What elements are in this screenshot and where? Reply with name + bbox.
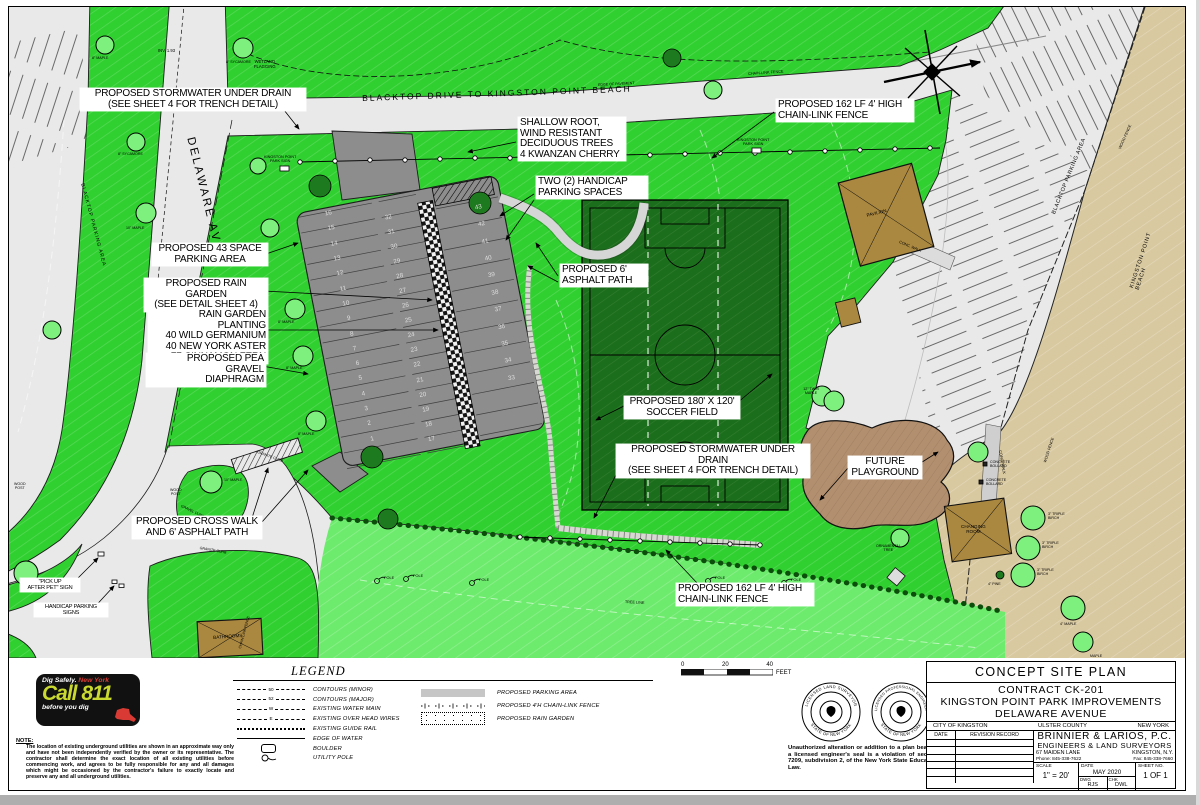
parking-space-number: 35: [498, 340, 511, 348]
parking-area-symbol: [421, 689, 485, 697]
callout-rain-garden: PROPOSED RAIN GARDEN (SEE DETAIL SHEET 4…: [144, 278, 268, 312]
pole-label-1: POLE: [384, 576, 394, 580]
wetland-flagging-label: WETLAND FLAGGING: [254, 60, 276, 69]
svg-text:STATE OF NEW YORK: STATE OF NEW YORK: [810, 722, 853, 737]
callout-parking-area: PROPOSED 43 SPACE PARKING AREA: [152, 243, 268, 266]
parking-space-number: 37: [492, 306, 505, 314]
parking-space-number: 36: [495, 323, 508, 331]
parking-space-number: 9: [342, 315, 355, 323]
parking-space-number: 24: [405, 332, 418, 340]
guide-rail-symbol: [237, 728, 305, 730]
bollard-label-1: CONCRETE BOLLARD: [990, 460, 1010, 468]
callout-asphalt-path: PROPOSED 6' ASPHALT PATH: [560, 264, 648, 287]
scale-cell: SCALE 1" = 20': [1034, 763, 1079, 791]
revision-table: DATE REVISION RECORD: [927, 731, 1034, 783]
parking-space-number: 2: [363, 420, 376, 428]
parking-space-number: 21: [414, 376, 427, 384]
parking-space-number: 15: [325, 225, 338, 233]
pole-label-4: POLE: [715, 576, 725, 580]
plan-title: CONCEPT SITE PLAN: [927, 662, 1175, 683]
parking-space-number: 30: [388, 243, 401, 251]
parking-space-number: 4: [357, 390, 370, 398]
parking-space-number: 26: [399, 302, 412, 310]
tree-label-9: MAPLE: [1090, 654, 1102, 658]
tree-label-6: 8" MAPLE: [298, 432, 314, 436]
ornamental-tree-label: ORNAMENTAL TREE: [876, 544, 901, 552]
note-body: The location of existing underground uti…: [26, 744, 234, 781]
parking-space-number: 10: [340, 300, 353, 308]
callout-pea-gravel: PROPOSED PEA GRAVEL DIAPHRAGM: [146, 353, 266, 387]
tree-label-4: 8" MAPLE: [278, 320, 294, 324]
dwg-cell: DWGRJS: [1079, 777, 1108, 791]
callout-fence-bottom: PROPOSED 162 LF 4' HIGH CHAIN-LINK FENCE: [676, 583, 814, 606]
pole-label-2: POLE: [413, 574, 423, 578]
ny-state-icon: [114, 706, 138, 723]
parking-space-number: 16: [322, 210, 335, 218]
legend-row-boulder: BOULDER: [237, 744, 400, 754]
callout-stormwater-drain-1: PROPOSED STORMWATER UNDER DRAIN (SEE SHE…: [80, 88, 306, 111]
scale-bar: 0 20 40 FEET: [681, 662, 811, 676]
twin-maple-label: 12" TWIN MAPLE: [798, 387, 824, 395]
legend: LEGEND 50 CONTOURS (MINOR) 52 CONTOURS (…: [233, 664, 653, 788]
utility-pole-symbol: [237, 753, 305, 763]
parking-space-number: 14: [328, 240, 341, 248]
contract-number: CONTRACT CK-201: [927, 684, 1175, 696]
revision-row: [927, 747, 1033, 754]
revision-row: [927, 740, 1033, 747]
callout-stormwater-drain-2: PROPOSED STORMWATER UNDER DRAIN (SEE SHE…: [616, 444, 810, 478]
legend-right-column: PROPOSED PARKING AREA PROPOSED 4'H CHAIN…: [421, 686, 600, 725]
revision-row: [927, 755, 1033, 762]
contour-minor-symbol: 50: [237, 688, 305, 693]
sheet-cell: SHEET NO. 1 OF 1: [1136, 763, 1175, 791]
parking-space-number: 19: [419, 406, 432, 414]
page-bottom-bar: [0, 795, 1200, 805]
callout-fence-top: PROPOSED 162 LF 4' HIGH CHAIN-LINK FENCE: [776, 99, 914, 122]
svg-text:STATE OF NEW YORK: STATE OF NEW YORK: [880, 722, 923, 737]
parking-space-number: 39: [485, 272, 498, 280]
overhead-wires-symbol: E: [237, 717, 305, 722]
parking-space-number: 31: [385, 228, 398, 236]
changing-room-label: CHANGING ROOM: [961, 524, 986, 534]
site-plan-sheet: BLACKTOP DRIVE TO KINGSTON POINT BEACH D…: [0, 0, 1200, 805]
alteration-note: Unauthorized alteration or addition to a…: [788, 745, 938, 771]
parking-space-number: 38: [489, 289, 502, 297]
contour-major-symbol: 52: [237, 697, 305, 702]
triple-birch-label-3: 3" TRIPLE BIRCH: [1037, 568, 1054, 576]
tree-label-1: 8" MAPLE: [92, 56, 108, 60]
tree-label-7: 10" MAPLE: [224, 478, 242, 482]
scale-bar-graphic: [681, 669, 773, 676]
parking-space-number: 40: [482, 255, 495, 263]
legend-row-edge-of-water: EDGE OF WATER: [237, 734, 400, 744]
chk-cell: CHKDWL: [1108, 777, 1136, 791]
callout-handicap-signs: HANDICAP PARKING SIGNS: [34, 603, 108, 617]
seal-crest-1: [827, 706, 836, 717]
revision-row: [927, 762, 1033, 769]
edge-of-water-symbol: [237, 738, 305, 739]
parking-space-number: 12: [334, 270, 347, 278]
parking-space-number: 11: [337, 285, 350, 293]
revision-row: [927, 777, 1033, 783]
parking-space-number: 18: [422, 420, 435, 428]
tree-label-8: 8" SYCAMORE: [118, 152, 143, 156]
tree-label-5: 8" MAPLE: [286, 366, 302, 370]
parking-space-number: 27: [396, 288, 409, 296]
sheet-bottom-strip: Dig Safely. New York Call 811 before you…: [9, 659, 1185, 790]
parking-space-number: 41: [479, 238, 492, 246]
parking-space-number: 34: [502, 357, 515, 365]
professional-seals: LICENSED LAND SURVEYOR STATE OF NEW YORK…: [791, 680, 943, 744]
parking-space-number: 3: [360, 405, 373, 413]
inv-label: INV. 1.93: [158, 49, 175, 54]
wood-post-label-1: WOOD POST: [14, 482, 26, 490]
water-main-symbol: W: [237, 707, 305, 712]
parking-space-number: 32: [382, 214, 395, 222]
parking-space-number: 7: [348, 345, 361, 353]
parking-space-number: 8: [345, 330, 358, 338]
parking-space-number: 13: [331, 255, 344, 263]
callout-pet-sign: "PICK UP AFTER PET" SIGN: [20, 578, 80, 592]
tree-label-2: 8" SYCAMORE: [226, 60, 251, 64]
wood-post-label-2: WOOD POST: [170, 488, 182, 496]
call811-logo: Dig Safely. New York Call 811 before you…: [36, 674, 140, 726]
pine-label: 4" PINE: [988, 582, 1001, 586]
parking-space-number: 29: [391, 258, 404, 266]
legend-row-rain-garden: PROPOSED RAIN GARDEN: [421, 712, 600, 725]
legend-row-guide-rail: EXISTING GUIDE RAIL: [237, 724, 400, 734]
scale-ticks: 0 20 40: [681, 662, 773, 668]
parking-space-number: 20: [416, 391, 429, 399]
revision-row: [927, 769, 1033, 776]
bollard-label-2: CONCRETE BOLLARD: [986, 478, 1006, 486]
legend-row-water-main: W EXISTING WATER MAIN: [237, 705, 400, 715]
legend-row-contours-minor: 50 CONTOURS (MINOR): [237, 685, 400, 695]
firm-type: ENGINEERS & LAND SURVEYORS: [1036, 742, 1173, 750]
title-block: CONCEPT SITE PLAN CONTRACT CK-201 KINGST…: [926, 661, 1176, 789]
parking-space-number: 25: [402, 317, 415, 325]
project-heading: CONTRACT CK-201 KINGSTON POINT PARK IMPR…: [927, 683, 1175, 722]
project-street: DELAWARE AVENUE: [927, 708, 1175, 720]
legend-row-parking-area: PROPOSED PARKING AREA: [421, 686, 600, 699]
callout-future-playground: FUTURE PLAYGROUND: [848, 456, 922, 479]
legend-rule: [233, 680, 653, 681]
location-row: CITY OF KINGSTON ULSTER COUNTY NEW YORK: [927, 722, 1175, 731]
parking-space-number: 42: [475, 221, 488, 229]
tree-label-3: 10" MAPLE: [126, 226, 144, 230]
legend-row-utility-pole: UTILITY POLE: [237, 754, 400, 764]
park-sign-label-2: KINGSTON POINT PARK SIGN: [737, 138, 769, 147]
callout-crosswalk: PROPOSED CROSS WALK AND 6' ASPHALT PATH: [132, 516, 262, 539]
parking-space-number: 22: [411, 361, 424, 369]
date-cell: DATE MAY 2020 DWGRJS CHKDWL: [1079, 763, 1136, 791]
callout-soccer-field: PROPOSED 180' X 120' SOCCER FIELD: [624, 396, 740, 419]
triple-birch-label-1: 3" TRIPLE BIRCH: [1048, 512, 1065, 520]
parking-entrance: [332, 131, 420, 200]
page-right-edge: [1196, 0, 1200, 805]
parking-space-number: 43: [472, 204, 485, 212]
pole-label-3: POLE: [479, 578, 489, 582]
seal-crest-2: [897, 706, 906, 717]
svg-text:LICENSED LAND SURVEYOR: LICENSED LAND SURVEYOR: [804, 684, 859, 707]
scale-unit: FEET: [776, 670, 791, 676]
pole-label-5: POLE: [791, 578, 801, 582]
legend-row-overhead-wires: E EXISTING OVER HEAD WIRES: [237, 714, 400, 724]
legend-left-column: 50 CONTOURS (MINOR) 52 CONTOURS (MAJOR) …: [237, 685, 400, 763]
parking-space-number: 5: [354, 375, 367, 383]
legend-title: LEGEND: [233, 664, 653, 679]
rain-garden-symbol: [421, 712, 485, 725]
triple-birch-label-2: 3" TRIPLE BIRCH: [1042, 541, 1059, 549]
boulder-symbol: [237, 744, 305, 753]
chain-link-symbol: [421, 702, 489, 710]
callout-handicap-spaces: TWO (2) HANDICAP PARKING SPACES: [536, 176, 648, 199]
callout-kwanzan-cherry: SHALLOW ROOT, WIND RESISTANT DECIDUOUS T…: [518, 117, 626, 161]
firm-info: BRINNIER & LARIOS, P.C. ENGINEERS & LAND…: [1034, 731, 1175, 763]
legend-row-contours-major: 52 CONTOURS (MAJOR): [237, 695, 400, 705]
parking-space-number: 28: [393, 273, 406, 281]
parking-space-number: 23: [408, 347, 421, 355]
legend-row-chain-link: PROPOSED 4'H CHAIN-LINK FENCE: [421, 699, 600, 712]
project-name: KINGSTON POINT PARK IMPROVEMENTS: [927, 696, 1175, 708]
parking-space-number: 6: [351, 360, 364, 368]
call811-number: Call 811: [42, 684, 134, 704]
maple-label-1: 4" MAPLE: [1060, 622, 1076, 626]
park-sign-label-1: KINGSTON POINT PARK SIGN: [264, 155, 296, 164]
